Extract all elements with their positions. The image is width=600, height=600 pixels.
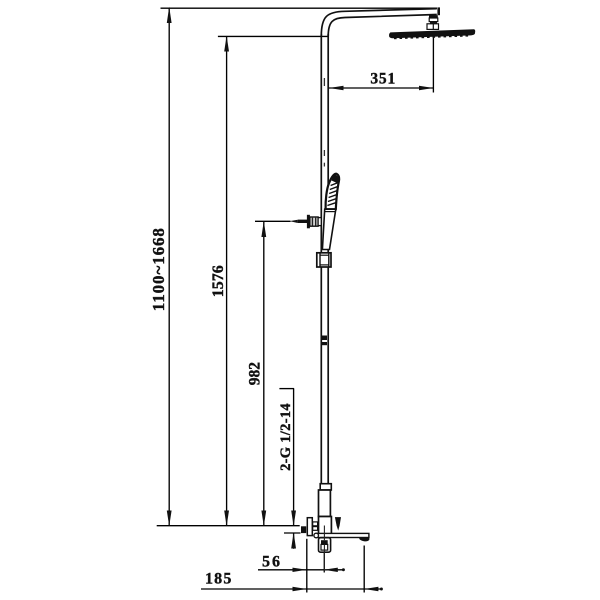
svg-text:1576: 1576 [210, 265, 227, 297]
svg-text:2-G 1/2-14: 2-G 1/2-14 [278, 403, 294, 471]
svg-text:56: 56 [262, 554, 282, 571]
svg-text:185: 185 [205, 571, 233, 588]
svg-text:982: 982 [246, 362, 263, 386]
svg-text:1100~1668: 1100~1668 [149, 227, 168, 311]
svg-text:351: 351 [370, 71, 396, 88]
